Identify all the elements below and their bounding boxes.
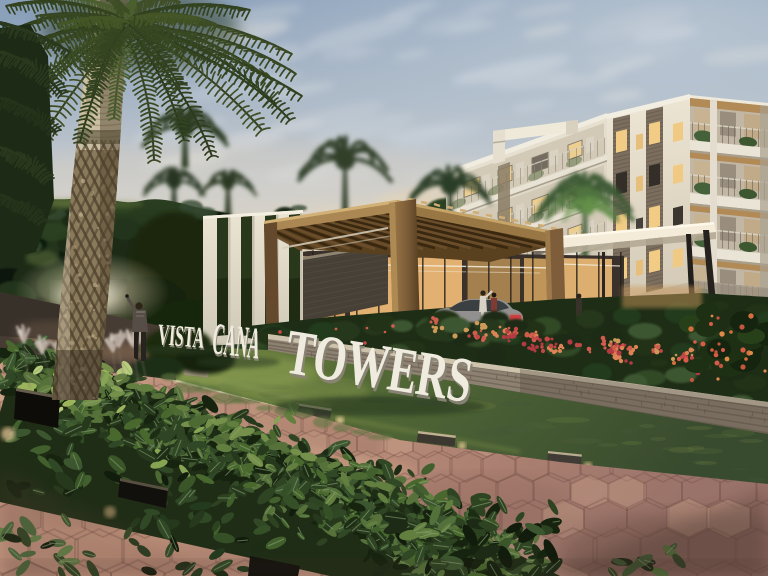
svg-text:CANA: CANA <box>210 315 263 369</box>
svg-text:VISTA: VISTA <box>156 319 206 355</box>
